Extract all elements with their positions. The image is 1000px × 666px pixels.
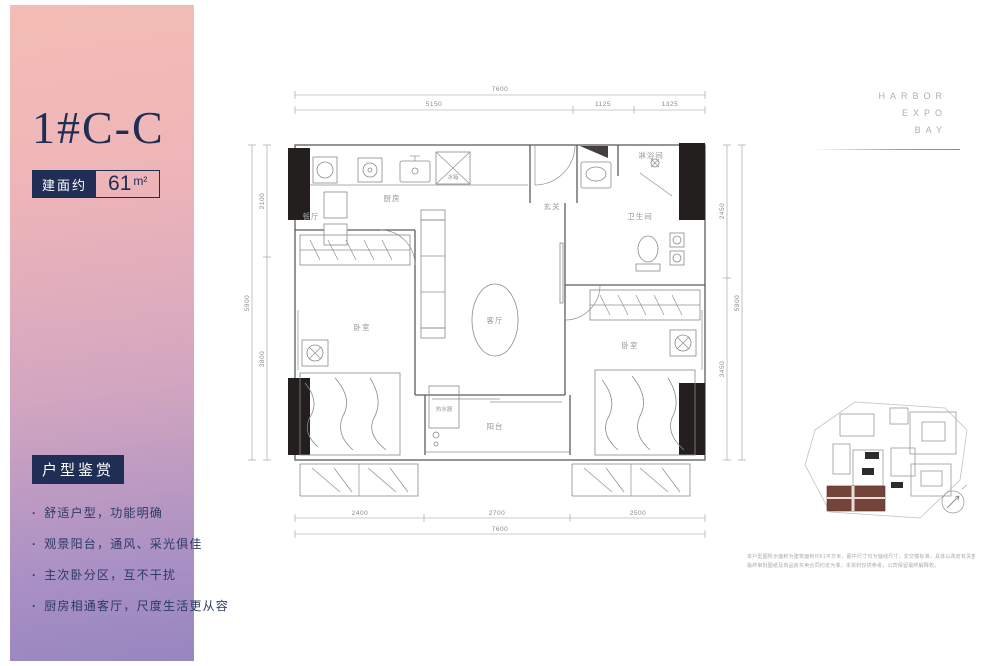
dim-bottom-seg3: 2500 — [630, 510, 646, 517]
disclaimer-line-1: 本户型图所示面积为建筑面积约61平方米，图中尺寸均为轴线尺寸，非交楼标准，具体以… — [747, 553, 975, 562]
area-row: 建面约 61 m² — [32, 170, 160, 198]
dim-right-seg2: 3450 — [719, 361, 726, 377]
dim-right-seg1: 2450 — [719, 203, 726, 219]
dim-bottom-total: 7600 — [492, 526, 508, 533]
walls — [295, 145, 705, 460]
wall-blocks — [288, 143, 705, 455]
brand-logo: HARBOR EXPO BAY — [845, 88, 947, 139]
feature-item: 观景阳台，通风、采光俱佳 — [32, 535, 182, 552]
living-label: 客厅 — [487, 315, 504, 325]
area-value: 61 — [108, 172, 131, 196]
entry-label: 玄关 — [544, 201, 561, 211]
dim-left-total: 5900 — [244, 295, 251, 311]
feature-item: 主次卧分区，互不干扰 — [32, 566, 182, 583]
fridge-label: 冰箱 — [447, 173, 459, 181]
bedroom-left-label: 卧室 — [354, 322, 371, 332]
platforms — [300, 464, 690, 496]
disclaimer-line-2: 最终审批图纸及商品房买卖合同约定为准。本资料仅供参考，公司保留最终解释权。 — [747, 562, 975, 571]
balcony-area: 热水器 阳台 — [425, 386, 570, 452]
entry-area: 玄关 — [535, 145, 575, 211]
features-block: 户型鉴赏 舒适户型，功能明确 观景阳台，通风、采光俱佳 主次卧分区，互不干扰 厨… — [32, 455, 182, 628]
balcony-label: 阳台 — [487, 421, 504, 431]
features-title-badge: 户型鉴赏 — [32, 455, 124, 484]
bedroom-left-area: 卧室 — [298, 230, 415, 455]
disclaimer-block: 本户型图所示面积为建筑面积约61平方米，图中尺寸均为轴线尺寸，非交楼标准，具体以… — [747, 553, 975, 571]
brand-underline — [812, 149, 960, 150]
dim-left-seg1: 2100 — [259, 193, 266, 209]
water-heater-label: 热水器 — [436, 405, 453, 413]
area-label-badge: 建面约 — [33, 171, 96, 197]
dim-top-seg1: 5150 — [426, 101, 442, 108]
page: 1#C-C 建面约 61 m² 户型鉴赏 舒适户型，功能明确 观景阳台，通风、采… — [0, 0, 1000, 666]
sidebar-panel: 1#C-C 建面约 61 m² 户型鉴赏 舒适户型，功能明确 观景阳台，通风、采… — [10, 5, 194, 661]
bathroom-label: 卫生间 — [627, 211, 653, 221]
dim-bottom-seg2: 2700 — [489, 510, 505, 517]
dim-top-seg3: 1325 — [662, 101, 678, 108]
dimension-lines-right: 2450 3450 5900 — [719, 145, 746, 460]
siteplan-map — [795, 390, 980, 530]
highlighted-building — [827, 486, 885, 511]
brand-line-3: BAY — [845, 122, 947, 139]
compass-icon — [942, 485, 967, 513]
dim-left-seg2: 3800 — [259, 351, 266, 367]
dimension-lines-bottom: 2400 2700 2500 7600 — [295, 510, 705, 538]
brand-line-2: EXPO — [845, 105, 947, 122]
dim-right-total: 5900 — [734, 295, 741, 311]
dim-top-seg2: 1125 — [595, 101, 611, 108]
features-list: 舒适户型，功能明确 观景阳台，通风、采光俱佳 主次卧分区，互不干扰 厨房相通客厅… — [32, 504, 182, 614]
unit-title: 1#C-C — [32, 101, 182, 154]
bathroom-area: 淋浴间 卫生间 — [581, 150, 684, 271]
dim-top-total: 7600 — [492, 86, 508, 93]
area-unit: m² — [133, 174, 147, 188]
dimension-lines-top: 7600 5150 1125 1325 — [295, 86, 705, 114]
feature-item: 舒适户型，功能明确 — [32, 504, 182, 521]
living-area: 客厅 — [421, 210, 563, 402]
dim-bottom-seg1: 2400 — [352, 510, 368, 517]
feature-item: 厨房相通客厅，尺度生活更从容 — [32, 597, 182, 614]
dining-label: 餐厅 — [303, 212, 320, 221]
kitchen-label: 厨房 — [384, 193, 401, 203]
area-value-box: 61 m² — [96, 171, 159, 197]
site-accents — [862, 452, 903, 488]
shower-label: 淋浴间 — [638, 150, 664, 160]
brand-line-1: HARBOR — [845, 88, 947, 105]
dimension-lines-left: 5900 2100 3800 — [244, 145, 271, 460]
floorplan-drawing: 7600 5150 1125 1325 2400 2700 2500 7600 … — [240, 78, 765, 548]
bedroom-right-label: 卧室 — [622, 340, 639, 350]
